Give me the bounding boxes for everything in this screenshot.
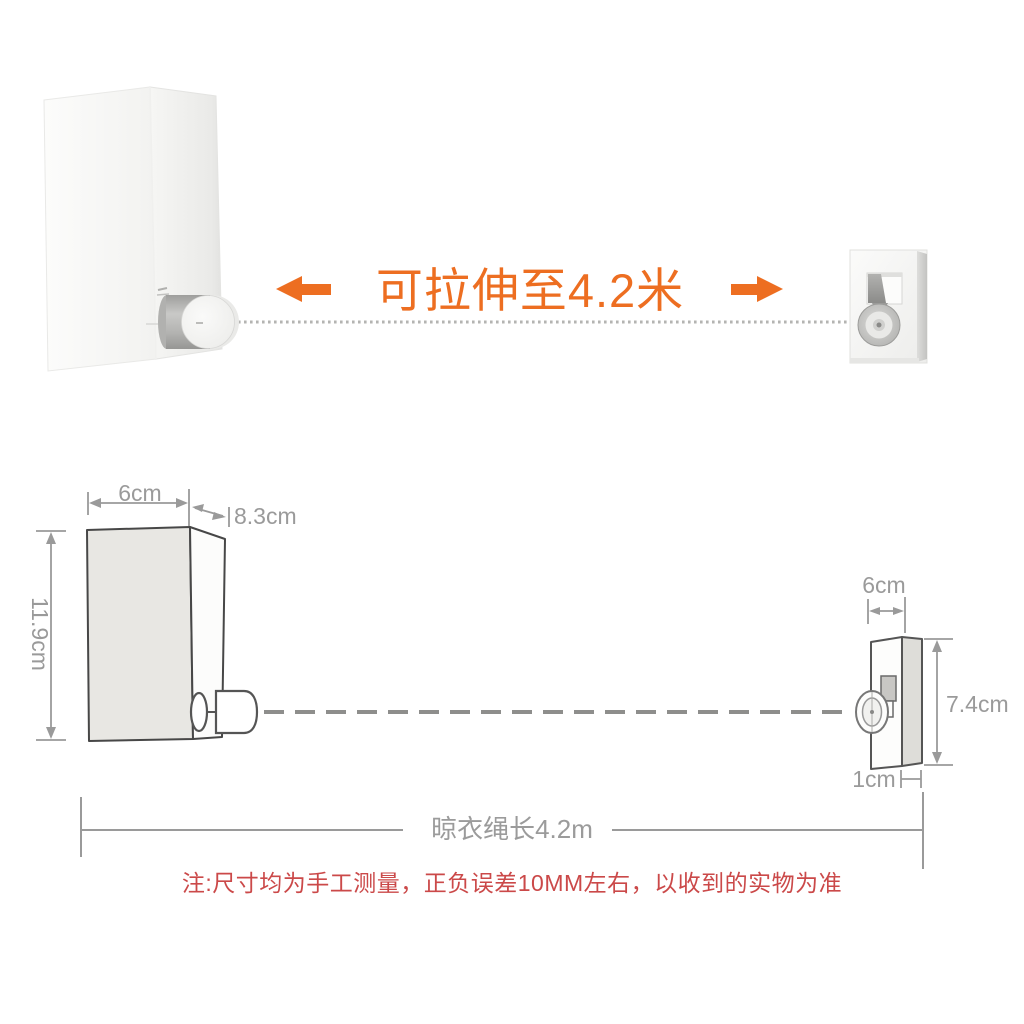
dim-bracket-width — [868, 597, 905, 633]
headline-text: 可拉伸至4.2米 — [330, 256, 730, 316]
dim-label-bracket-depth: 1cm — [850, 767, 898, 791]
product-dimension-diagram: 可拉伸至4.2米 6cm 8.3cm 11.9cm 6cm 7.4cm 1cm … — [0, 0, 1024, 1024]
dim-device-depth — [192, 504, 229, 527]
stretch-arrow-left-icon — [276, 276, 331, 302]
note-text: 注:尺寸均为手工测量，正负误差10MM左右，以收到的实物为准 — [0, 866, 1024, 896]
device-outline-drawing — [87, 527, 257, 741]
device-knob-photo — [158, 295, 239, 349]
stretch-arrow-right-icon — [731, 276, 783, 302]
dim-label-device-height: 11.9cm — [28, 588, 52, 680]
dim-label-device-width: 6cm — [110, 481, 170, 505]
dim-bracket-depth — [901, 770, 921, 788]
bracket-outline-drawing — [856, 637, 922, 769]
dim-label-bracket-height: 7.4cm — [946, 692, 1009, 716]
wall-bracket-photo — [850, 250, 927, 363]
dim-label-device-depth: 8.3cm — [234, 504, 297, 528]
dim-label-bracket-width: 6cm — [854, 573, 914, 597]
rope-length-label: 晾衣绳长4.2m — [402, 812, 622, 842]
